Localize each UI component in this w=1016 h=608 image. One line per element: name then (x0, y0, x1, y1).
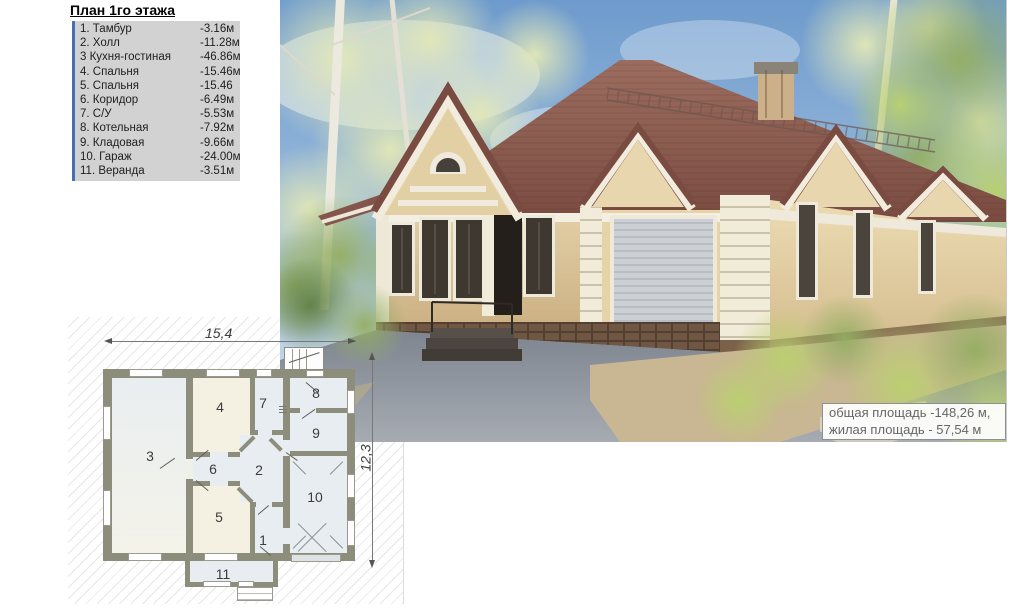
window (129, 369, 163, 377)
window (204, 553, 238, 561)
legend-row: 10. Гараж-24.00м (80, 151, 240, 165)
total-area-text: общая площадь -148,26 м, (829, 405, 999, 422)
plan-title: План 1го этажа (70, 2, 175, 18)
window (128, 553, 162, 561)
garage-door-opening (291, 554, 341, 562)
area-summary-box: общая площадь -148,26 м, жилая площадь -… (822, 403, 1006, 440)
room-label-4: 4 (216, 399, 224, 415)
room-legend: 1. Тамбур-3.16м 2. Холл-11.28м 3 Кухня-г… (72, 21, 240, 181)
legend-row: 5. Спальня-15.46 (80, 80, 240, 94)
room-3-kitchen-living (112, 378, 186, 553)
living-area-text: жилая площадь - 57,54 м (829, 422, 999, 439)
room-11-veranda (190, 561, 273, 582)
legend-row: 9. Кладовая-9.66м (80, 137, 240, 151)
legend-row: 2. Холл-11.28м (80, 37, 240, 51)
legend-row: 1. Тамбур-3.16м (80, 23, 240, 37)
room-label-8: 8 (312, 385, 320, 401)
window (347, 520, 355, 546)
room-label-3: 3 (146, 448, 154, 464)
back-porch-stairs (284, 347, 324, 371)
window (103, 406, 111, 440)
room-label-5: 5 (215, 509, 223, 525)
legend-row: 4. Спальня-15.46м (80, 66, 240, 80)
room-label-2: 2 (255, 462, 263, 478)
legend-row: 11. Веранда-3.51м (80, 165, 240, 179)
room-label-1: 1 (259, 532, 267, 548)
window (206, 369, 240, 377)
room-label-9: 9 (312, 425, 320, 441)
dimension-line-width (108, 341, 356, 342)
legend-row: 8. Котельная-7.92м (80, 122, 240, 136)
room-label-7: 7 (259, 395, 267, 411)
back-door-opening (306, 370, 324, 377)
window (256, 369, 272, 377)
page: общая площадь -148,26 м, жилая площадь -… (0, 0, 1016, 608)
room-label-10: 10 (307, 489, 323, 505)
window (347, 390, 355, 414)
dimension-height-label: 12,3 (358, 444, 374, 471)
legend-row: 7. С/У-5.53м (80, 108, 240, 122)
room-label-11: 11 (216, 566, 231, 582)
legend-row: 6. Коридор-6.49м (80, 94, 240, 108)
window (103, 490, 111, 526)
window (347, 474, 355, 498)
veranda-porch-steps (237, 587, 273, 601)
dimension-width-label: 15,4 (205, 325, 232, 341)
vent-shaft-mark (279, 406, 286, 414)
room-label-6: 6 (209, 461, 217, 477)
legend-row: 3 Кухня-гостиная-46.86м (80, 51, 240, 65)
